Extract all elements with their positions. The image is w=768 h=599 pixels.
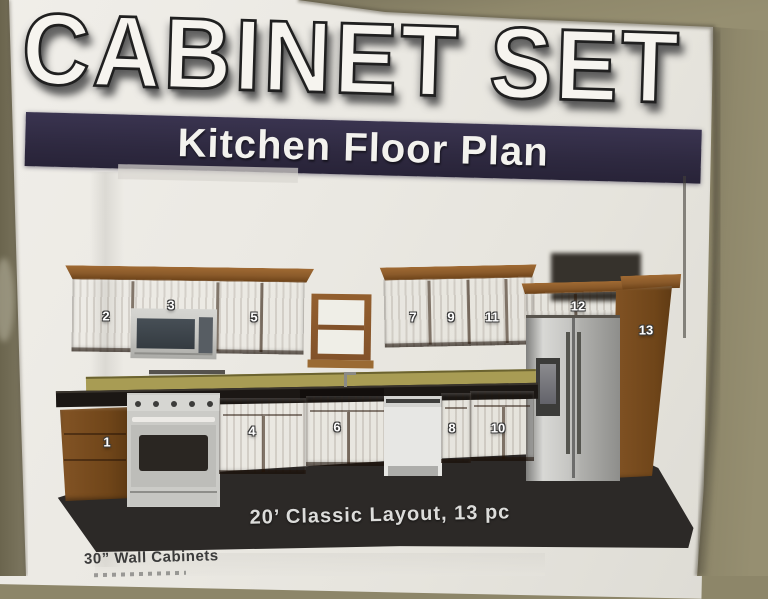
base-cabinet-6 xyxy=(306,396,389,466)
cabinet-number-5: 5 xyxy=(250,310,257,325)
range-knob xyxy=(189,401,195,407)
upper-cabinet-box xyxy=(383,276,534,347)
drawer-line xyxy=(64,459,126,461)
base-cabinet-1 xyxy=(60,407,130,501)
cabinet-number-12: 12 xyxy=(571,299,585,314)
dishwasher-kickplate xyxy=(388,466,438,476)
cabinet-number-9: 9 xyxy=(447,310,454,325)
microwave xyxy=(130,308,217,359)
cabinet-number-13: 13 xyxy=(639,323,653,338)
upper-cabinet-run-right xyxy=(378,264,540,349)
dispenser-panel xyxy=(540,364,556,404)
footer-text: 30” Wall Cabinets xyxy=(84,547,219,568)
cabinet-number-10: 10 xyxy=(491,421,505,436)
cabinet-number-2: 2 xyxy=(102,309,109,324)
door-stile xyxy=(347,412,350,464)
drawer-line xyxy=(64,433,126,435)
door-stile xyxy=(504,279,508,343)
range-knob xyxy=(135,401,141,407)
window-sill xyxy=(307,360,373,369)
cabinet-number-7: 7 xyxy=(409,310,416,325)
flyer-content: CABINET SET Kitchen Floor Plan xyxy=(0,0,768,576)
upper-cabinet-run-left xyxy=(61,265,316,366)
door-stile xyxy=(259,283,263,352)
cabinet-number-3: 3 xyxy=(167,298,174,313)
faucet-spout xyxy=(344,372,356,375)
cabinet-number-1: 1 xyxy=(103,435,110,450)
door-stile xyxy=(262,416,265,472)
dishwasher-control-strip xyxy=(386,399,440,403)
oven-window xyxy=(139,435,208,471)
range-knob xyxy=(171,401,177,407)
fridge-dispenser xyxy=(536,358,560,416)
base-cabinet-8 xyxy=(441,393,471,463)
range-knob xyxy=(153,401,159,407)
cabinet-number-4: 4 xyxy=(248,424,255,439)
base-cabinet-4 xyxy=(219,398,306,474)
window xyxy=(310,294,371,369)
cabinet-rail xyxy=(470,457,534,461)
range xyxy=(127,393,220,507)
cabinet-number-8: 8 xyxy=(448,421,455,436)
cabinet-rail xyxy=(441,459,471,463)
cabinet-rail xyxy=(306,462,389,466)
cabinet-rail xyxy=(385,340,535,347)
door-stile xyxy=(427,281,431,345)
door-stile xyxy=(466,280,470,344)
microwave-door-glass xyxy=(137,318,195,349)
poster-title: CABINET SET xyxy=(21,0,738,130)
fridge-handle xyxy=(566,332,570,454)
range-knob xyxy=(207,401,213,407)
cabinet-number-6: 6 xyxy=(333,420,340,435)
scan-artifact xyxy=(118,164,298,183)
dishwasher xyxy=(384,396,442,476)
photo-border-line xyxy=(683,176,686,338)
warming-drawer xyxy=(130,491,217,506)
fridge-door-seam xyxy=(572,318,575,478)
window-rail xyxy=(318,325,364,331)
drawer-line xyxy=(445,407,467,409)
cabinet-number-11: 11 xyxy=(485,310,499,325)
refrigerator xyxy=(526,315,620,481)
cabinet-rail xyxy=(219,470,306,474)
oven-handle xyxy=(132,417,215,422)
microwave-control-panel xyxy=(198,317,213,353)
fridge-handle xyxy=(577,332,581,454)
microwave-trim xyxy=(134,352,212,355)
